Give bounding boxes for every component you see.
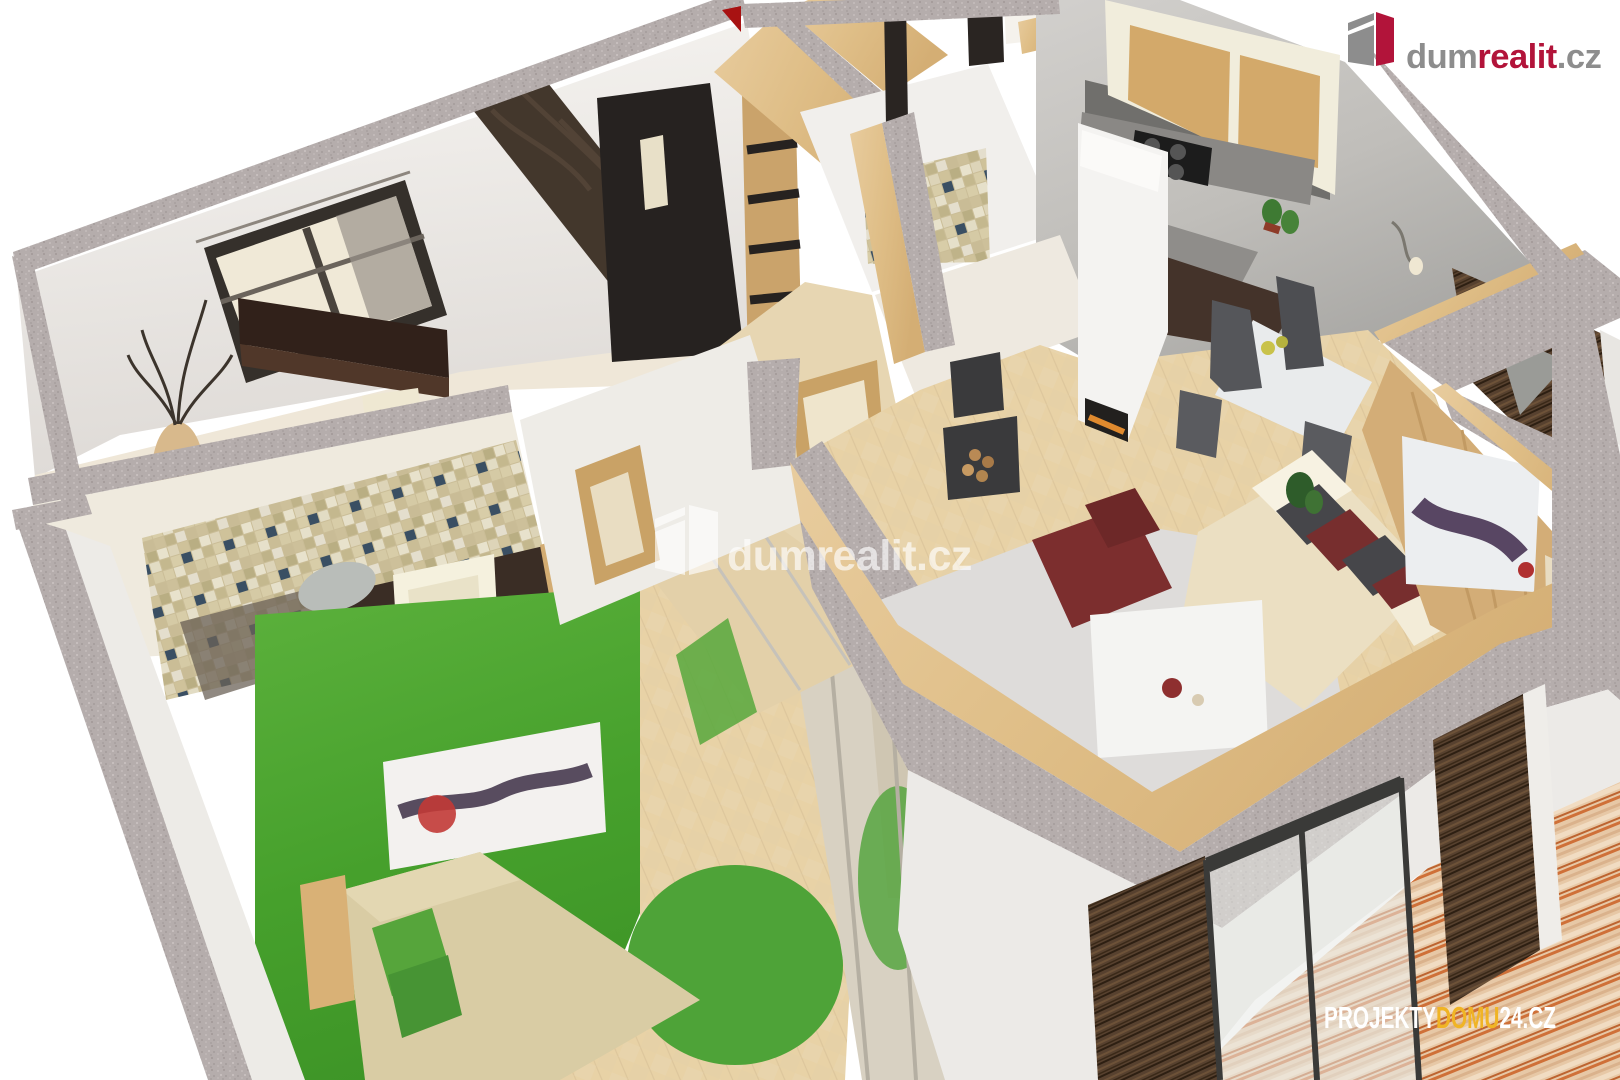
svg-text:PROJEKTYDOMU24.CZ: PROJEKTYDOMU24.CZ <box>1324 1000 1556 1035</box>
svg-text:dumrealit.cz: dumrealit.cz <box>727 532 972 580</box>
svg-text:dumrealit.cz: dumrealit.cz <box>1406 38 1601 76</box>
